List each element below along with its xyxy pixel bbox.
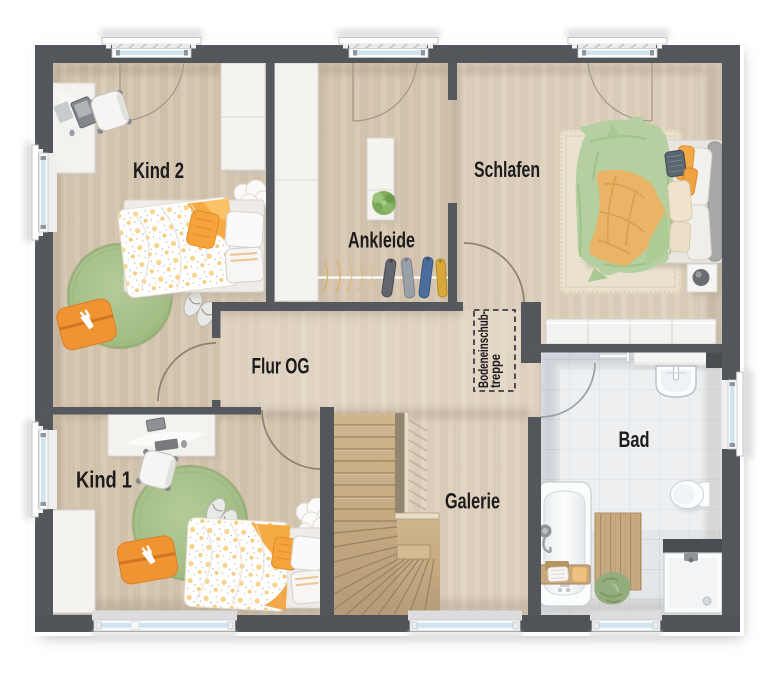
svg-text:Kind 2: Kind 2 bbox=[133, 158, 184, 183]
svg-text:Bad: Bad bbox=[619, 427, 650, 452]
svg-text:Schlafen: Schlafen bbox=[474, 157, 540, 182]
svg-text:Kind 1: Kind 1 bbox=[76, 467, 132, 493]
svg-text:Galerie: Galerie bbox=[445, 489, 500, 514]
svg-text:Flur OG: Flur OG bbox=[252, 354, 310, 379]
svg-text:treppe: treppe bbox=[487, 354, 503, 388]
svg-text:Ankleide: Ankleide bbox=[348, 228, 415, 253]
